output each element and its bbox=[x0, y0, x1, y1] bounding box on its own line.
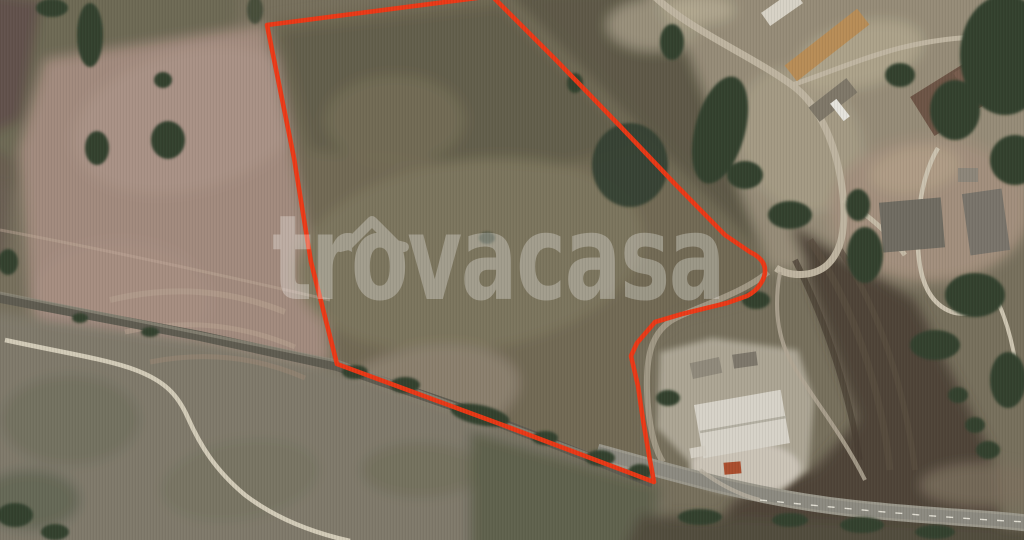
satellite-imagery: trovacasa bbox=[0, 0, 1024, 540]
house-compound-2 bbox=[962, 189, 1010, 256]
satellite-map-view: trovacasa bbox=[0, 0, 1024, 540]
brand-watermark: trovacasa bbox=[272, 189, 724, 327]
house-compound-1 bbox=[879, 197, 945, 252]
shed-red-roof bbox=[724, 461, 742, 474]
watermark-text: trovacasa bbox=[272, 189, 724, 327]
